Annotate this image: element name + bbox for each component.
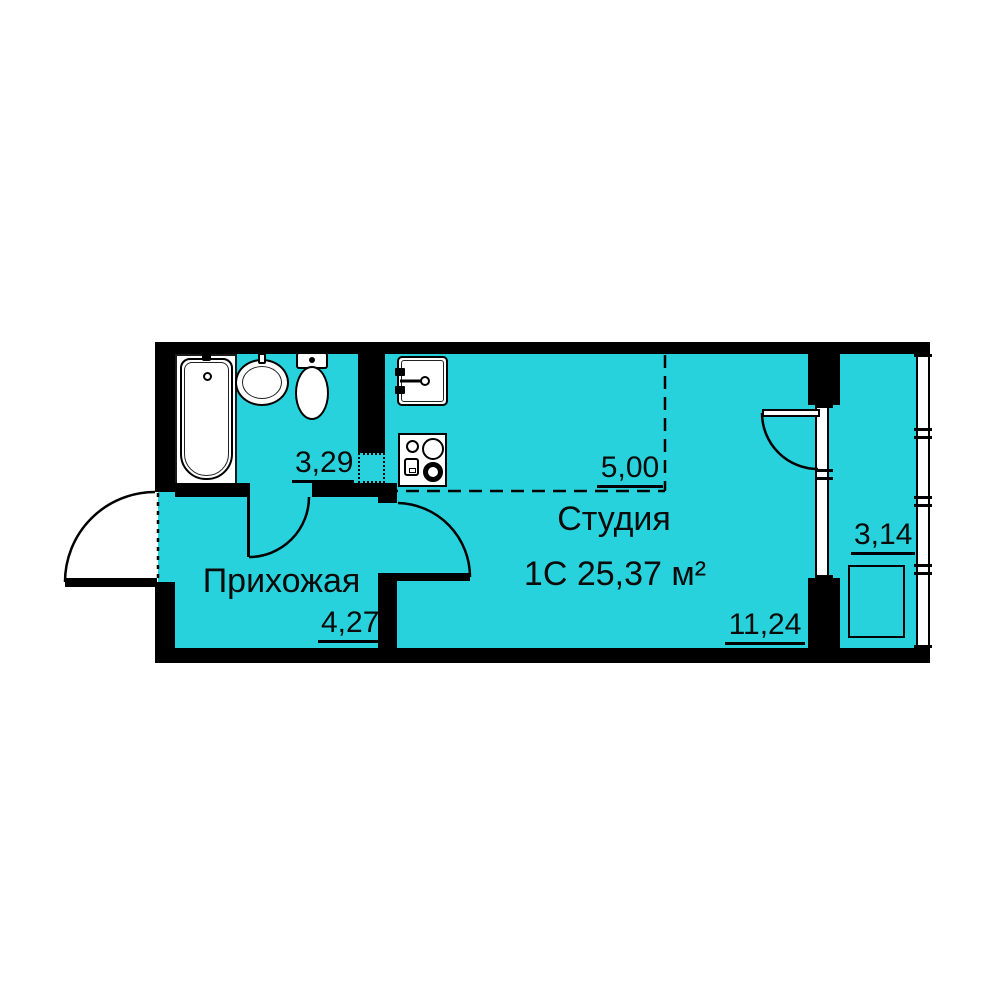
- studio-door-arc: [398, 503, 470, 577]
- hallway-area-label: 4,27: [318, 607, 382, 643]
- unit-details: 1С 25,37 м²: [510, 557, 720, 593]
- unit-title: Студия: [539, 502, 689, 538]
- balcony-area-label: 3,14: [851, 519, 915, 555]
- entry-door-arc: [65, 492, 155, 582]
- balcony-door-arc: [762, 413, 818, 469]
- bathroom-area-label: 3,29: [292, 447, 354, 483]
- kitchen-zone-area-label: 5,00: [597, 452, 663, 488]
- plan-linework: [0, 0, 1000, 1000]
- living-zone-area-label: 11,24: [725, 609, 805, 645]
- bathroom-door-arc: [249, 497, 309, 557]
- hallway-label: Прихожая: [199, 564, 364, 600]
- floorplan: 3,29 5,00 4,27 11,24 3,14 Прихожая Студи…: [0, 0, 1000, 1000]
